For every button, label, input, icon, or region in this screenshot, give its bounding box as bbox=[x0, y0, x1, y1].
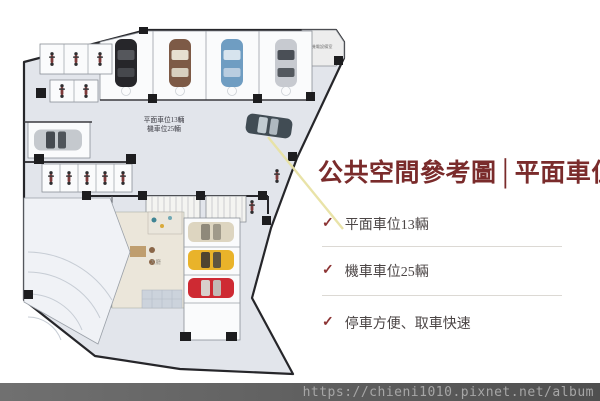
floor-plan: 機電設備室 bbox=[0, 0, 600, 401]
footer-bar: https://chieni1010.pixnet.net/album bbox=[0, 383, 600, 401]
car-icon-yellow bbox=[188, 250, 234, 270]
utility-room-label: 機電設備室 bbox=[312, 43, 333, 50]
car-icon-brown bbox=[169, 39, 191, 87]
feature-text: 平面車位13輛 bbox=[345, 214, 429, 234]
divider bbox=[322, 295, 562, 296]
watermark-url: https://chieni1010.pixnet.net/album bbox=[303, 385, 594, 400]
car-icon-silver-left bbox=[34, 130, 82, 151]
car-icon-blue bbox=[221, 39, 243, 87]
check-icon: ✓ bbox=[322, 264, 334, 278]
lobby-label: 大廳 bbox=[150, 258, 162, 266]
page-title: 公共空間參考圖│平面車位 bbox=[318, 153, 600, 189]
check-icon: ✓ bbox=[322, 217, 334, 231]
feature-text: 停車方便、取車快速 bbox=[345, 313, 471, 333]
page: 機電設備室 bbox=[0, 0, 600, 401]
car-icon-red bbox=[188, 278, 234, 298]
car-icon-black bbox=[115, 39, 137, 87]
check-icon: ✓ bbox=[322, 316, 334, 330]
feature-item-flat-spaces: ✓ 平面車位13輛 bbox=[322, 214, 429, 234]
feature-item-convenience: ✓ 停車方便、取車快速 bbox=[322, 313, 471, 333]
plan-label-line2: 機車位25輛 bbox=[147, 124, 181, 133]
car-icon-silver bbox=[275, 39, 297, 87]
plan-label-line1: 平面車位13輛 bbox=[144, 115, 185, 124]
left-car-stall bbox=[24, 122, 92, 158]
feature-item-moto-spaces: ✓ 機車車位25輛 bbox=[322, 261, 429, 281]
car-icon-cream bbox=[188, 222, 234, 242]
divider bbox=[322, 246, 562, 247]
feature-text: 機車車位25輛 bbox=[345, 261, 429, 281]
bottom-parking-stalls bbox=[184, 218, 240, 340]
